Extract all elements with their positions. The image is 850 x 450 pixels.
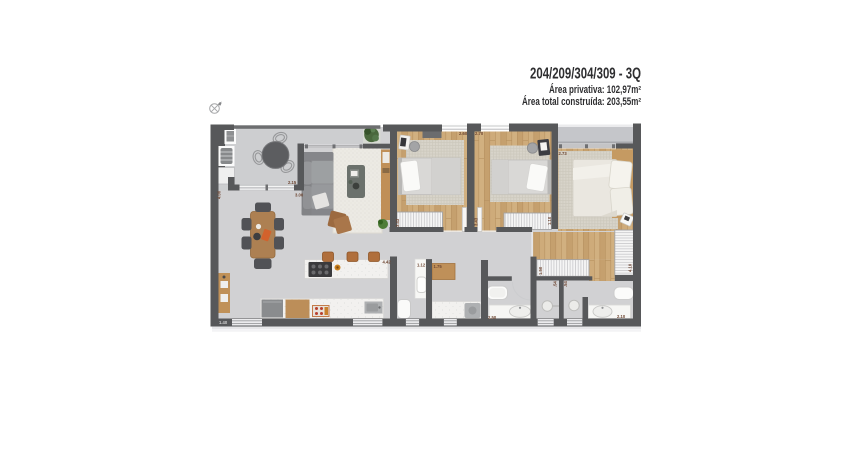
svg-text:.54: .54 xyxy=(553,281,558,287)
svg-text:1.50: 1.50 xyxy=(538,266,543,275)
svg-text:1.12: 1.12 xyxy=(417,263,426,268)
svg-text:204/209/304/309 - 3Q: 204/209/304/309 - 3Q xyxy=(530,66,641,83)
svg-text:2.60: 2.60 xyxy=(459,131,468,136)
svg-text:2.70: 2.70 xyxy=(475,131,484,136)
svg-text:3.00: 3.00 xyxy=(295,193,304,198)
svg-text:3.43: 3.43 xyxy=(474,217,479,226)
svg-text:2.15: 2.15 xyxy=(288,180,297,185)
svg-text:.54: .54 xyxy=(563,281,568,287)
svg-text:Área total construída: 203,55m: Área total construída: 203,55m² xyxy=(522,95,641,108)
svg-text:1.40: 1.40 xyxy=(219,320,228,325)
svg-text:1.75: 1.75 xyxy=(434,264,443,269)
svg-text:3.43: 3.43 xyxy=(395,218,400,227)
svg-text:1.10: 1.10 xyxy=(547,216,552,225)
svg-text:2.73: 2.73 xyxy=(559,151,568,156)
svg-text:4.00: 4.00 xyxy=(217,190,222,199)
svg-text:2.50: 2.50 xyxy=(488,315,497,320)
svg-text:4.42: 4.42 xyxy=(383,260,392,265)
svg-text:4.10: 4.10 xyxy=(628,263,633,272)
svg-text:Área privativa: 102,97m²: Área privativa: 102,97m² xyxy=(549,83,641,96)
svg-text:2.10: 2.10 xyxy=(617,314,626,319)
